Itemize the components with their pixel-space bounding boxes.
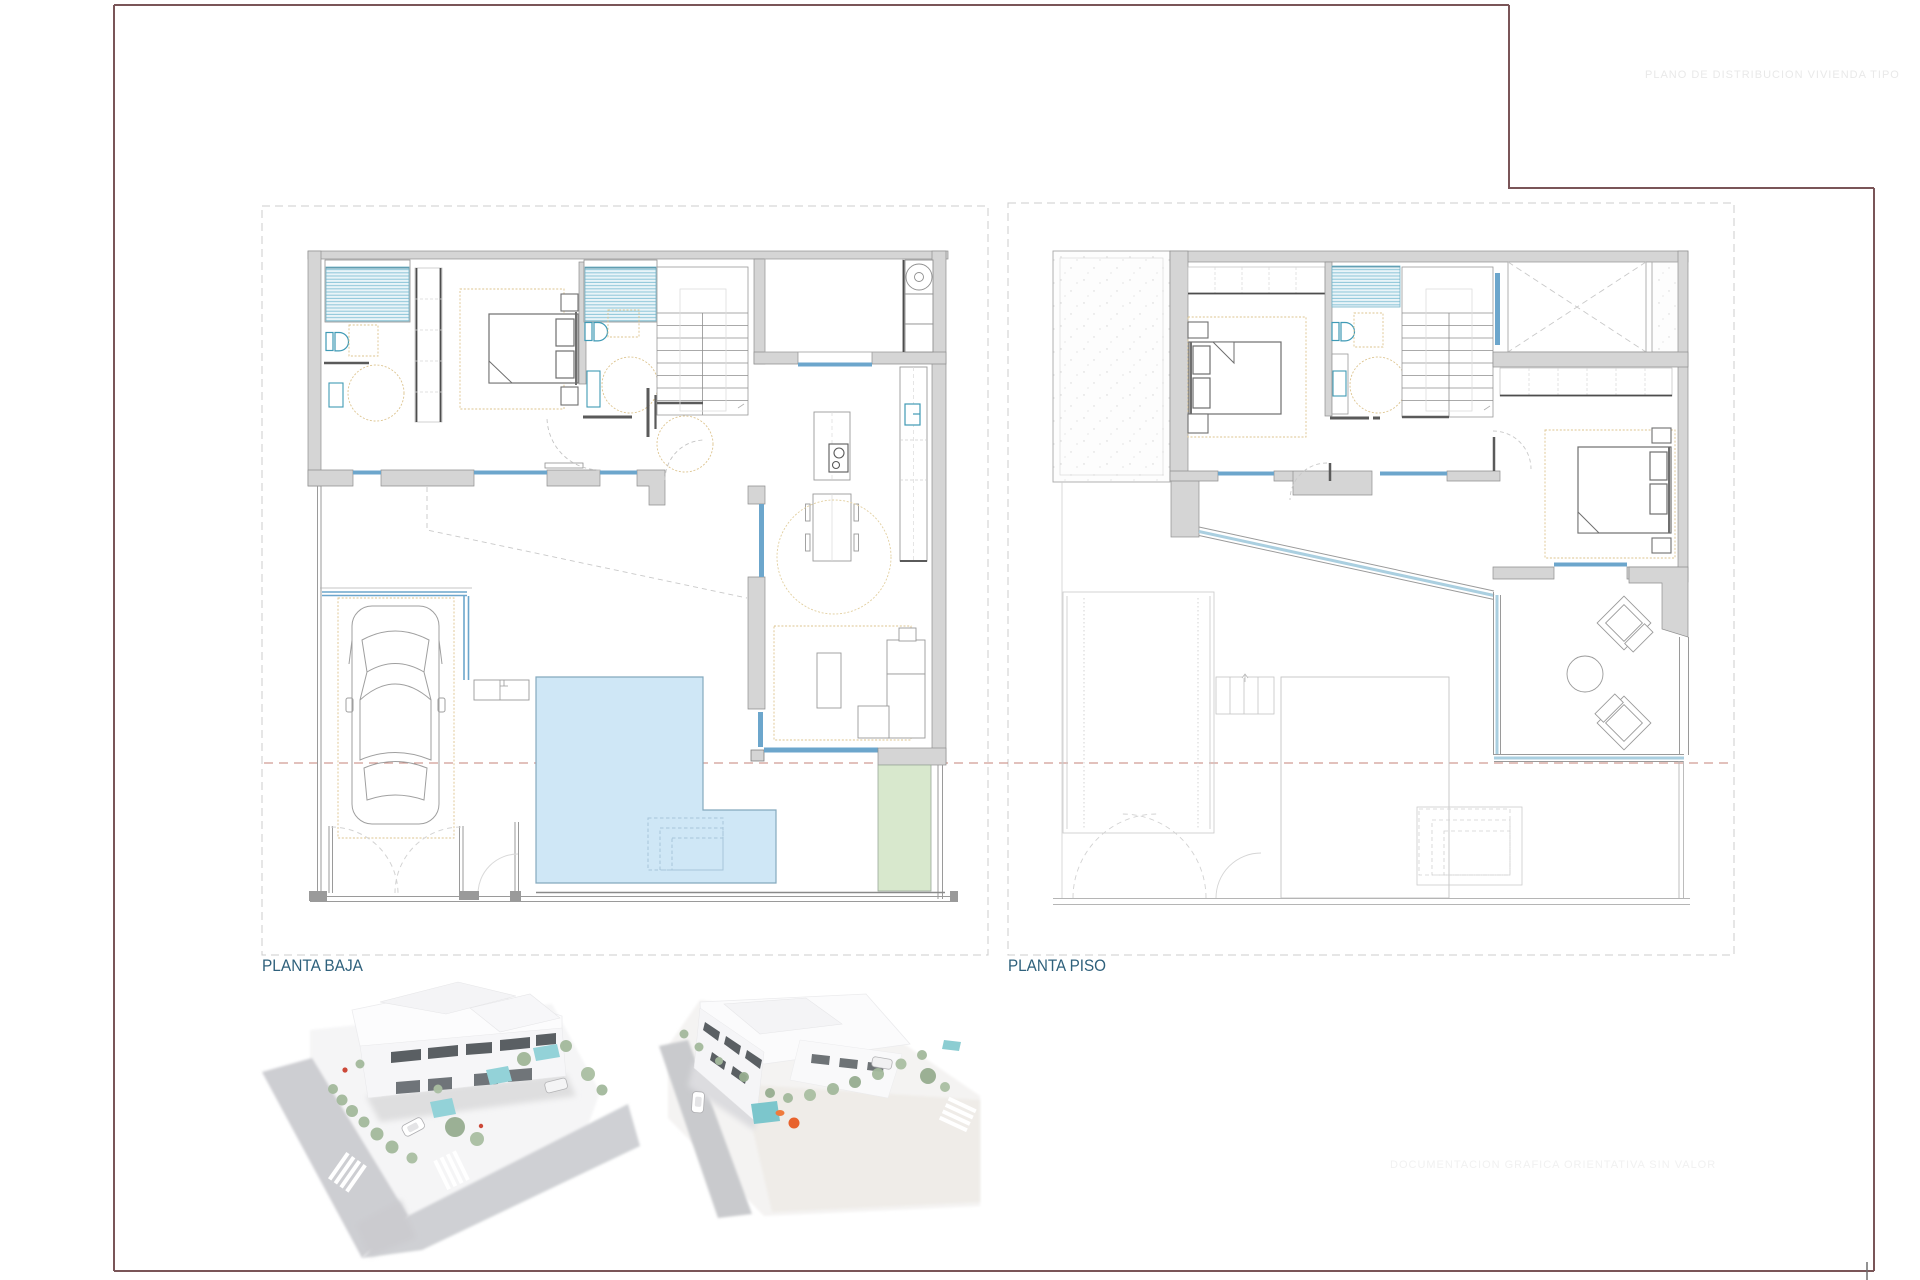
svg-text:DOCUMENTACION GRAFICA ORIENTAT: DOCUMENTACION GRAFICA ORIENTATIVA SIN VA… [1390, 1159, 1716, 1171]
svg-text:PLANTA PISO: PLANTA PISO [1008, 956, 1106, 975]
svg-text:PLANO DE DISTRIBUCION VIVIENDA: PLANO DE DISTRIBUCION VIVIENDA TIPO [1645, 69, 1900, 81]
svg-text:PLANTA BAJA: PLANTA BAJA [262, 956, 364, 975]
